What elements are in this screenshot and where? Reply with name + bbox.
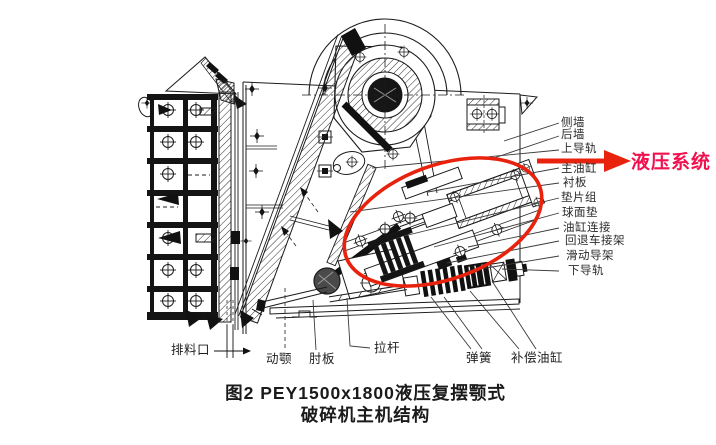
figure-caption-line2: 破碎机主机结构 — [178, 404, 553, 426]
sliding-guide-frame-label: 滑动导架 — [566, 250, 614, 262]
figure-caption: 图2 PEY1500x1800液压复摆颚式 破碎机主机结构 — [178, 382, 553, 426]
side-wall-label: 侧墙 — [561, 117, 585, 129]
liner-plate-label: 衬板 — [563, 177, 587, 189]
rear-wall-label: 后墙 — [561, 129, 585, 141]
spherical-pad-label: 球面垫 — [562, 207, 598, 219]
toggle-plate-label: 肘板 — [309, 353, 335, 366]
shim-group-label: 垫片组 — [561, 192, 597, 204]
spring-label: 弹簧 — [466, 352, 492, 365]
compensation-cylinder-label: 补偿油缸 — [511, 352, 563, 365]
fixed-jaw-plate — [219, 92, 240, 330]
highlight-arrow-head — [604, 150, 631, 172]
main-cylinder-label: 主油缸 — [561, 163, 597, 175]
cylinder-connection-label: 油缸连接 — [563, 222, 611, 234]
scanned-figure-page: 侧墙 后墙 上导轨 主油缸 衬板 垫片组 球面垫 油缸连接 回退车接架 滑动导架… — [0, 0, 716, 445]
upper-guide-rail-label: 上导轨 — [561, 143, 597, 155]
retract-carriage-frame-label: 回退车接架 — [565, 235, 625, 247]
figure-caption-line1: 图2 PEY1500x1800液压复摆颚式 — [178, 382, 553, 404]
frame-bracket — [467, 95, 505, 135]
moving-jaw-label: 动颚 — [266, 353, 292, 366]
hydraulic-system-label: 液压系统 — [631, 147, 711, 174]
tension-rod-label: 拉杆 — [374, 342, 400, 355]
lower-guide-rail-label: 下导轨 — [568, 265, 604, 277]
discharge-opening-label: 排料口 — [171, 344, 210, 357]
